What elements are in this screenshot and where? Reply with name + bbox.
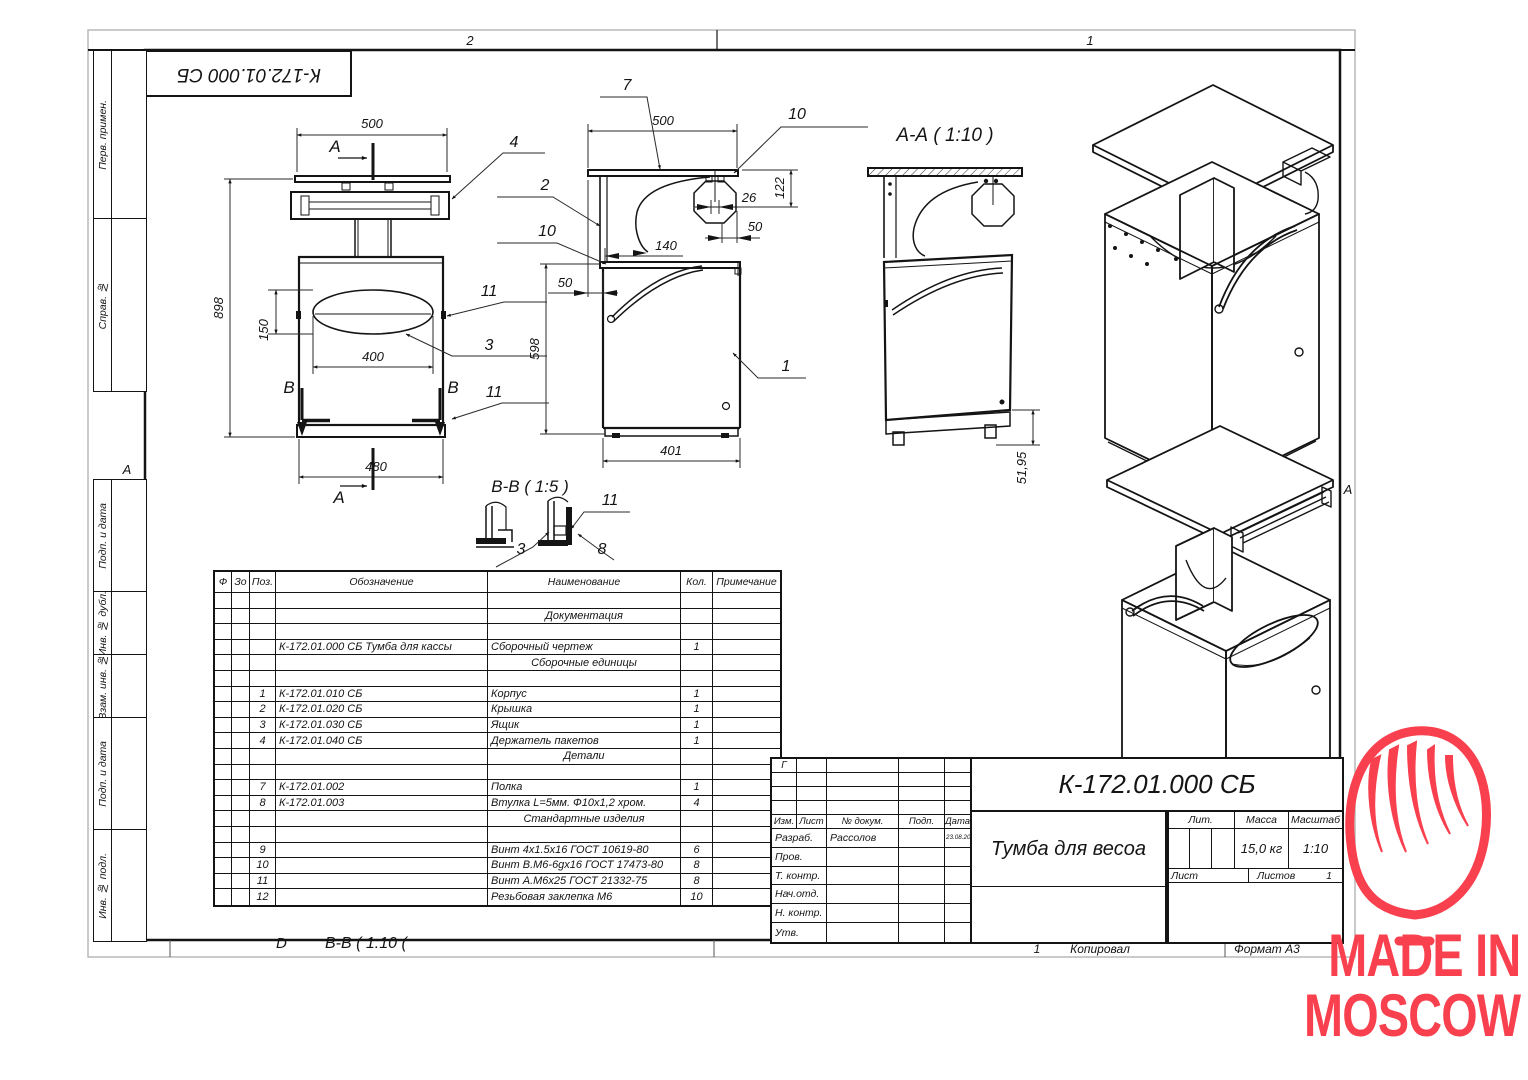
spec-cell-designation: [276, 655, 488, 671]
sheets-label: Листов: [1257, 870, 1295, 882]
mass-value-cell: 15,0 кг: [1235, 829, 1289, 869]
aa-dim-5195: [996, 410, 1040, 445]
sidebar-label: Перв. примен.: [94, 51, 112, 219]
col-dokum: № докум.: [827, 815, 899, 829]
side-callout-1: 1: [782, 358, 791, 375]
signature-row: Пров.: [772, 848, 972, 867]
front-oval-cutout: [313, 290, 433, 334]
side-dim-50-right-text: 50: [748, 219, 763, 234]
spec-cell-zone: [232, 593, 250, 609]
spec-cell-name: Крышка: [488, 702, 681, 718]
spec-cell-note: [713, 671, 780, 687]
bottom-sheet-no: 1: [1034, 942, 1041, 956]
sidebar-box-vzam-inv: Взам. инв. №: [93, 654, 147, 719]
spec-cell-zone: [232, 609, 250, 625]
aa-bag-curve: [913, 182, 978, 256]
side-dim-598: [540, 264, 605, 434]
sig-role: Разраб.: [772, 829, 827, 848]
front-callout-3: 3: [485, 337, 494, 354]
spec-cell-note: [713, 733, 780, 749]
sig-signature: [899, 829, 945, 848]
spec-row: 2 К-172.01.020 СБ Крышка 1: [215, 702, 780, 718]
scale-value-cell: 1:10: [1289, 829, 1342, 869]
spec-cell-designation: [276, 889, 488, 905]
bb-bushing: [566, 507, 572, 545]
sig-role: Т. контр.: [772, 867, 827, 886]
spec-row: Документация: [215, 609, 780, 625]
spec-cell-pos: [250, 593, 276, 609]
sig-date: [945, 885, 972, 904]
front-dim-150-text: 150: [256, 318, 271, 340]
col-list: Лист: [797, 815, 827, 829]
spec-cell-designation: К-172.01.040 СБ: [276, 733, 488, 749]
sidebar-box-inv-dubl: Инв. № дубл.: [93, 591, 147, 656]
logo-made-in: MADE IN: [1328, 928, 1520, 983]
spec-cell-format: [215, 733, 232, 749]
spec-cell-note: [713, 655, 780, 671]
front-section-b-right-label: В: [447, 378, 458, 397]
spec-cell-qty: [681, 671, 713, 687]
stamp-doc-number: К-172.01.000 СБ: [177, 63, 321, 85]
spec-cell-pos: [250, 624, 276, 640]
spec-cell-pos: 8: [250, 796, 276, 812]
side-dim-122-text: 122: [772, 176, 787, 198]
spec-cell-zone: [232, 827, 250, 843]
spec-cell-zone: [232, 624, 250, 640]
spec-cell-pos: [250, 671, 276, 687]
aa-dim-5195-text: 51,95: [1014, 451, 1029, 484]
front-dim-400: [313, 316, 433, 374]
side-dim-140-text: 140: [655, 238, 677, 253]
spec-cell-pos: [250, 749, 276, 765]
doc-number-cell: К-172.01.000 СБ: [972, 759, 1342, 812]
spec-cell-name: Документация: [488, 609, 681, 625]
revision-grid: Г: [772, 759, 972, 815]
spec-cell-qty: 4: [681, 796, 713, 812]
side-base: [605, 428, 738, 436]
spec-row: 9 Винт 4х1.5х16 ГОСТ 10619-80 6: [215, 843, 780, 859]
side-view: [497, 97, 868, 468]
thick-divider: [1167, 812, 1169, 942]
side-callout-2: 2: [540, 177, 550, 194]
sig-date: [945, 848, 972, 867]
lit-subcells: [1167, 829, 1235, 869]
spec-row: 7 К-172.01.002 Полка 1: [215, 780, 780, 796]
spec-row: 3 К-172.01.030 СБ Ящик 1: [215, 718, 780, 734]
sidebar-box-podp-data-1: Подп. и дата: [93, 479, 147, 593]
sidebar-box-inv-podl: Инв. № подл.: [93, 829, 147, 942]
sig-name: Рассолов: [827, 829, 899, 848]
spec-row: 4 К-172.01.040 СБ Держатель пакетов 1: [215, 733, 780, 749]
spec-cell-designation: [276, 827, 488, 843]
scale-label-cell: Масштаб: [1289, 812, 1342, 829]
spec-cell-note: [713, 593, 780, 609]
front-callout-4: 4: [510, 134, 519, 151]
spec-cell-pos: [250, 640, 276, 656]
spec-cell-name: Полка: [488, 780, 681, 796]
spec-cell-qty: [681, 811, 713, 827]
bb-callout-8: 8: [598, 541, 607, 558]
spec-cell-qty: 1: [681, 733, 713, 749]
spec-cell-designation: К-172.01.003: [276, 796, 488, 812]
spec-cell-zone: [232, 765, 250, 781]
sig-name: [827, 904, 899, 923]
spec-cell-qty: [681, 593, 713, 609]
front-section-b-left-label: В: [283, 378, 294, 397]
spec-cell-format: [215, 796, 232, 812]
balloon-stripes: [1369, 742, 1468, 852]
spec-cell-format: [215, 765, 232, 781]
spec-cell-pos: [250, 827, 276, 843]
spec-cell-zone: [232, 858, 250, 874]
spec-cell-designation: [276, 811, 488, 827]
spec-cell-format: [215, 718, 232, 734]
spec-cell-name: Втулка L=5мм. Ф10х1,2 хром.: [488, 796, 681, 812]
spec-cell-pos: [250, 655, 276, 671]
spec-header-row: Ф Зо Поз. Обозначение Наименование Кол. …: [215, 572, 780, 593]
spec-header-pos: Поз.: [250, 572, 276, 593]
spec-cell-note: [713, 718, 780, 734]
spec-cell-qty: 1: [681, 718, 713, 734]
sig-date: [945, 904, 972, 923]
spec-header-zone: Зо: [232, 572, 250, 593]
spec-cell-zone: [232, 655, 250, 671]
sheets-count-cell: Листов 1: [1249, 869, 1342, 883]
sig-role: Утв.: [772, 923, 827, 942]
spec-header-designation: Обозначение: [276, 572, 488, 593]
spec-cell-name: Держатель пакетов: [488, 733, 681, 749]
detail-bb-title: В-В ( 1:5 ): [491, 477, 568, 496]
sig-name: [827, 885, 899, 904]
spec-cell-format: [215, 889, 232, 905]
spec-cell-name: Винт В.М6-6gх16 ГОСТ 17473-80: [488, 858, 681, 874]
sig-name: [827, 867, 899, 886]
sig-name: [827, 923, 899, 942]
spec-cell-name: Детали: [488, 749, 681, 765]
spec-cell-zone: [232, 749, 250, 765]
spec-cell-designation: К-172.01.010 СБ: [276, 687, 488, 703]
front-dim-898-text: 898: [211, 296, 226, 318]
spec-cell-qty: 1: [681, 780, 713, 796]
drawing-sheet: 2 1 А А 1 Копировал Формат А3 D В-В ( 1:…: [0, 0, 1528, 1080]
spec-row: [215, 593, 780, 609]
spec-cell-zone: [232, 718, 250, 734]
sig-signature: [899, 885, 945, 904]
lit-label-cell: Лит.: [1167, 812, 1235, 829]
spec-cell-name: [488, 765, 681, 781]
spec-cell-qty: 6: [681, 843, 713, 859]
spec-cell-format: [215, 874, 232, 890]
bottom-format-label: Формат А3: [1234, 942, 1300, 956]
side-dim-500-text: 500: [652, 113, 674, 128]
spec-cell-zone: [232, 811, 250, 827]
spec-cell-zone: [232, 671, 250, 687]
product-title-cell: Тумба для весоа: [972, 812, 1167, 887]
sig-role: Н. контр.: [772, 904, 827, 923]
front-callout-11-top: 11: [481, 283, 498, 300]
spec-cell-qty: [681, 765, 713, 781]
spec-cell-designation: [276, 609, 488, 625]
spec-cell-note: [713, 640, 780, 656]
spec-cell-name: Корпус: [488, 687, 681, 703]
spec-cell-qty: 1: [681, 702, 713, 718]
fold-marker-right: А: [1343, 482, 1353, 497]
side-dim-26-text: 26: [741, 190, 757, 205]
spec-cell-format: [215, 593, 232, 609]
side-callout-10-left: 10: [538, 223, 556, 240]
spec-cell-zone: [232, 843, 250, 859]
made-in-moscow-logo-icon: [1350, 731, 1487, 941]
spec-cell-format: [215, 827, 232, 843]
spec-cell-pos: 11: [250, 874, 276, 890]
spec-cell-qty: [681, 827, 713, 843]
bottom-note-view: В-В ( 1:10 (: [325, 935, 408, 952]
spec-cell-pos: 2: [250, 702, 276, 718]
spec-cell-qty: 8: [681, 874, 713, 890]
aa-hatched-top: [868, 168, 1022, 176]
spec-cell-qty: [681, 749, 713, 765]
spec-cell-format: [215, 655, 232, 671]
side-callout-7: 7: [623, 77, 633, 94]
spec-cell-pos: 3: [250, 718, 276, 734]
spec-header-qty: Кол.: [681, 572, 713, 593]
spec-row: Сборочные единицы: [215, 655, 780, 671]
spec-cell-pos: 7: [250, 780, 276, 796]
spec-cell-pos: 10: [250, 858, 276, 874]
aa-base: [886, 412, 1010, 434]
spec-cell-format: [215, 702, 232, 718]
sidebar-label: Инв. № дубл.: [94, 592, 112, 655]
spec-row: [215, 765, 780, 781]
sidebar-label: Подп. и дата: [94, 480, 112, 592]
spec-row: Детали: [215, 749, 780, 765]
signature-row: Нач.отд.: [772, 885, 972, 904]
signature-row: Утв.: [772, 923, 972, 942]
spec-cell-format: [215, 609, 232, 625]
spec-cell-zone: [232, 780, 250, 796]
sheets-value: 1: [1326, 870, 1332, 882]
spec-cell-name: [488, 827, 681, 843]
front-view: [224, 128, 549, 490]
col-izm: Изм.: [772, 815, 797, 829]
title-block: Г Изм. Лист № докум. Подп. Дата Разраб. …: [770, 757, 1344, 944]
spec-cell-name: Винт 4х1.5х16 ГОСТ 10619-80: [488, 843, 681, 859]
sidebar-label: Подп. и дата: [94, 718, 112, 830]
sig-date: [945, 923, 972, 942]
spec-cell-note: [713, 624, 780, 640]
col-data: Дата: [945, 815, 972, 829]
sidebar-label: Взам. инв. №: [94, 655, 112, 718]
bb-callout-3: 3: [517, 541, 526, 558]
col-podp: Подп.: [899, 815, 945, 829]
side-dim-401-text: 401: [660, 443, 682, 458]
spec-cell-designation: [276, 874, 488, 890]
spec-row: [215, 671, 780, 687]
spec-cell-designation: [276, 765, 488, 781]
spec-cell-pos: [250, 765, 276, 781]
front-dim-500-text: 500: [361, 116, 383, 131]
spec-cell-note: [713, 702, 780, 718]
spec-cell-designation: [276, 671, 488, 687]
spec-cell-zone: [232, 702, 250, 718]
bottom-copied-label: Копировал: [1070, 942, 1130, 956]
spec-cell-zone: [232, 640, 250, 656]
spec-cell-name: Стандартные изделия: [488, 811, 681, 827]
sig-name: [827, 848, 899, 867]
bb-callout-leaders: [496, 512, 630, 567]
spec-cell-designation: К-172.01.000 СБ Тумба для кассы: [276, 640, 488, 656]
spec-cell-note: [713, 687, 780, 703]
sig-date: 23.08.2021: [945, 829, 972, 848]
spec-cell-name: Винт А.М6х25 ГОСТ 21332-75: [488, 874, 681, 890]
spec-cell-qty: 8: [681, 858, 713, 874]
sig-role: Пров.: [772, 848, 827, 867]
sidebar-box-perv-primen: Перв. примен.: [93, 50, 147, 220]
spec-header-format: Ф: [215, 572, 232, 593]
signature-rows: Разраб. Рассолов 23.08.2021 Пров. Т. кон…: [772, 829, 972, 942]
fold-marker-left: А: [122, 462, 132, 477]
spec-cell-format: [215, 858, 232, 874]
sidebar-box-sprav-no: Справ. №: [93, 218, 147, 392]
iso2-tabletop: [1107, 426, 1333, 534]
front-dim-400-text: 400: [362, 349, 384, 364]
side-dim-500: [588, 124, 737, 168]
spec-cell-pos: [250, 811, 276, 827]
section-aa-view: [868, 168, 1040, 445]
sig-signature: [899, 904, 945, 923]
signature-row: Разраб. Рассолов 23.08.2021: [772, 829, 972, 848]
spec-row: Стандартные изделия: [215, 811, 780, 827]
logo-moscow: MOSCOW: [1304, 988, 1520, 1043]
empty-cell-below-title: [972, 887, 1167, 942]
spec-cell-pos: [250, 609, 276, 625]
bb-callout-11: 11: [602, 492, 619, 509]
spec-cell-name: Сборочный чертеж: [488, 640, 681, 656]
sig-signature: [899, 848, 945, 867]
spec-cell-pos: 4: [250, 733, 276, 749]
side-cabinet-top: [600, 262, 740, 268]
spec-cell-designation: [276, 843, 488, 859]
side-dim-598-text: 598: [527, 337, 542, 359]
spec-cell-designation: К-172.01.030 СБ: [276, 718, 488, 734]
spec-row: 12 Резьбовая заклепка М6 10: [215, 889, 780, 905]
side-callout-10-top: 10: [788, 106, 806, 123]
bottom-note-d: D: [276, 935, 287, 952]
zone-number-left: 2: [465, 33, 474, 48]
spec-cell-designation: [276, 593, 488, 609]
sidebar-label: Инв. № подл.: [94, 830, 112, 941]
spec-cell-format: [215, 671, 232, 687]
signature-row: Н. контр.: [772, 904, 972, 923]
front-section-a-bottom-label: А: [332, 488, 344, 507]
spec-cell-name: [488, 593, 681, 609]
front-dim-898: [224, 179, 295, 437]
front-section-b-marks: [297, 388, 445, 436]
front-callout-11-bottom: 11: [486, 384, 503, 401]
zone-number-right: 1: [1086, 33, 1093, 48]
spec-cell-designation: [276, 749, 488, 765]
spec-cell-name: [488, 624, 681, 640]
spec-cell-format: [215, 640, 232, 656]
sheet-label-cell: Лист: [1167, 869, 1249, 883]
top-left-stamp: К-172.01.000 СБ: [145, 50, 352, 97]
spec-cell-designation: К-172.01.020 СБ: [276, 702, 488, 718]
spec-cell-pos: 1: [250, 687, 276, 703]
spec-cell-designation: К-172.01.002: [276, 780, 488, 796]
spec-cell-zone: [232, 733, 250, 749]
spec-row: К-172.01.000 СБ Тумба для кассы Сборочны…: [215, 640, 780, 656]
specification-table: Ф Зо Поз. Обозначение Наименование Кол. …: [213, 570, 782, 907]
spec-cell-format: [215, 624, 232, 640]
rev-mark: Г: [772, 759, 797, 773]
spec-cell-zone: [232, 687, 250, 703]
spec-cell-name: Резьбовая заклепка М6: [488, 889, 681, 905]
spec-cell-designation: [276, 858, 488, 874]
spec-row: 10 Винт В.М6-6gх16 ГОСТ 17473-80 8: [215, 858, 780, 874]
spec-row: 1 К-172.01.010 СБ Корпус 1: [215, 687, 780, 703]
spec-row: 8 К-172.01.003 Втулка L=5мм. Ф10х1,2 хро…: [215, 796, 780, 812]
mass-label-cell: Масса: [1235, 812, 1289, 829]
sig-role: Нач.отд.: [772, 885, 827, 904]
front-base: [297, 425, 445, 437]
spec-cell-format: [215, 780, 232, 796]
spec-cell-name: [488, 671, 681, 687]
section-aa-title: А-А ( 1:10 ): [895, 125, 993, 146]
front-dim-480-text: 480: [365, 459, 387, 474]
front-bag-holder: [291, 192, 449, 219]
sig-date: [945, 867, 972, 886]
spec-row: 11 Винт А.М6х25 ГОСТ 21332-75 8: [215, 874, 780, 890]
sig-signature: [899, 867, 945, 886]
spec-cell-pos: 9: [250, 843, 276, 859]
spec-cell-format: [215, 749, 232, 765]
spec-cell-pos: 12: [250, 889, 276, 905]
spec-cell-qty: [681, 609, 713, 625]
spec-cell-qty: 10: [681, 889, 713, 905]
spec-cell-qty: [681, 655, 713, 671]
spec-cell-qty: [681, 624, 713, 640]
spec-cell-format: [215, 811, 232, 827]
spec-row: [215, 624, 780, 640]
spec-cell-format: [215, 843, 232, 859]
spec-header-note: Примечание: [713, 572, 780, 593]
signature-row: Т. контр.: [772, 867, 972, 886]
spec-cell-zone: [232, 796, 250, 812]
spec-cell-name: Ящик: [488, 718, 681, 734]
front-dim-150: [268, 290, 313, 334]
sidebar-box-podp-data-2: Подп. и дата: [93, 717, 147, 831]
sig-signature: [899, 923, 945, 942]
spec-row: [215, 827, 780, 843]
spec-cell-qty: 1: [681, 687, 713, 703]
spec-body: Документация К-172.01.000 СБ Тумба для к…: [215, 593, 780, 905]
spec-cell-designation: [276, 624, 488, 640]
spec-cell-qty: 1: [681, 640, 713, 656]
sidebar-label: Справ. №: [94, 219, 112, 391]
spec-cell-note: [713, 609, 780, 625]
spec-cell-format: [215, 687, 232, 703]
side-dim-50-left-text: 50: [558, 275, 573, 290]
spec-cell-zone: [232, 874, 250, 890]
spec-cell-zone: [232, 889, 250, 905]
signature-header-row: Изм. Лист № докум. Подп. Дата: [772, 815, 972, 829]
front-section-a-top-label: А: [328, 137, 340, 156]
spec-cell-name: Сборочные единицы: [488, 655, 681, 671]
spec-header-name: Наименование: [488, 572, 681, 593]
